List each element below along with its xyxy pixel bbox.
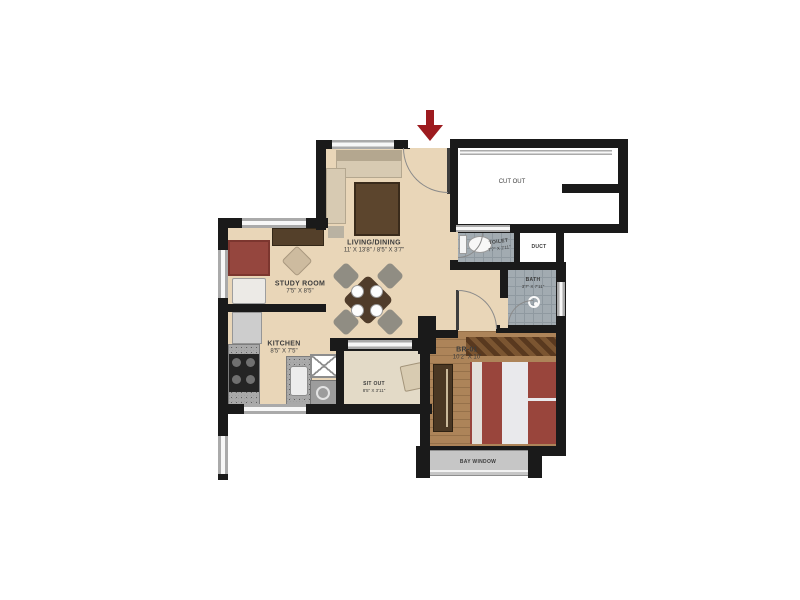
room-name: CUT OUT [499, 179, 526, 187]
sofa-chaise-icon [326, 168, 346, 224]
room-name: KITCHEN [267, 340, 300, 349]
study-daybed-icon [228, 240, 270, 276]
cutout-label: CUT OUT [499, 179, 526, 187]
stove-icon [229, 354, 259, 392]
dining-set-icon [334, 266, 402, 334]
sitout-label: SIT OUT 8'5" X 3'11" [363, 381, 386, 393]
living-dining-label: LIVING/DINING 11' X 13'8" / 8'5" X 3'7" [344, 239, 404, 256]
entrance-arrow-icon [417, 110, 443, 141]
window-kitchen-bottom [244, 404, 306, 414]
wall-sitout-left [336, 351, 344, 406]
room-dims: 8'5" X 3'11" [363, 387, 386, 393]
room-name: BR-01 [453, 346, 481, 355]
window-left-bottom [218, 436, 228, 474]
kitchen-label: KITCHEN 8'5" X 7'5" [267, 340, 300, 357]
cutout-sill-line [460, 150, 612, 155]
room-name: SIT OUT [363, 381, 386, 388]
room-dims: 10'2" X 10' [453, 355, 481, 363]
shower-head-dot [534, 302, 538, 306]
bed-sheet-strip [472, 362, 482, 444]
bath-label: BATH 3'7" X 7'11" [522, 277, 545, 289]
burner-icon [232, 358, 241, 367]
study-room-label: STUDY ROOM 7'5" X 8'5" [275, 280, 325, 297]
side-table-icon [328, 226, 344, 238]
fridge-icon [232, 312, 262, 344]
washer-door-icon [316, 386, 330, 400]
bed-sheet-band [502, 362, 528, 444]
sofa-icon [336, 150, 402, 160]
bed-icon [470, 362, 558, 444]
wall-bay-right-pier-foot [528, 446, 542, 478]
sink-icon [290, 366, 308, 396]
wall-cutout-top [450, 139, 628, 148]
room-name: STUDY ROOM [275, 280, 325, 289]
burner-icon [246, 358, 255, 367]
service-door-icon [310, 354, 338, 378]
study-desk-icon [272, 228, 324, 246]
toilet-door-gap [450, 232, 458, 260]
bed-fold-line [528, 398, 558, 401]
plate-icon [351, 285, 364, 298]
plate-icon [370, 285, 383, 298]
wall-living-left [316, 146, 326, 230]
bay-window-label: BAY WINDOW [460, 459, 496, 466]
room-name: BAY WINDOW [460, 459, 496, 466]
room-dims: 3'7" X 7'11" [522, 283, 545, 289]
room-dims: 8'5" X 7'5" [267, 349, 300, 357]
burner-icon [232, 375, 241, 384]
window-toilet-top [456, 225, 510, 232]
burner-icon [246, 375, 255, 384]
floorplan-canvas: LIVING/DINING 11' X 13'8" / 8'5" X 3'7" … [0, 0, 800, 600]
study-armchair-icon [232, 278, 266, 304]
room-name: LIVING/DINING [344, 239, 404, 248]
coffee-table-icon [354, 182, 400, 236]
bath-door-gap [500, 298, 508, 328]
window-bath-right [557, 282, 565, 316]
window-living-top [332, 140, 394, 149]
wardrobe-line [446, 369, 448, 427]
wall-bedroom-right [556, 332, 566, 454]
room-dims: 7'5" X 8'5" [275, 289, 325, 297]
room-name: DUCT [531, 244, 546, 251]
wall-study-kitchen-divider [222, 304, 326, 312]
bedroom-label: BR-01 10'2" X 10' [453, 346, 481, 363]
window-study-top [242, 218, 306, 228]
wall-service-bottom [450, 262, 566, 270]
wardrobe-icon [433, 364, 453, 432]
window-sitout-top [348, 340, 412, 349]
wall-cutout-step [562, 184, 628, 193]
room-dims: 11' X 13'8" / 8'5" X 3'7" [344, 248, 404, 256]
window-left-study [218, 250, 228, 298]
bay-window-inner-line [430, 470, 528, 472]
plate-icon [351, 304, 364, 317]
wall-bedroom-bottom-line [430, 446, 530, 450]
wall-bay-left-pier [416, 446, 430, 478]
duct-label: DUCT [531, 244, 546, 251]
plate-icon [370, 304, 383, 317]
